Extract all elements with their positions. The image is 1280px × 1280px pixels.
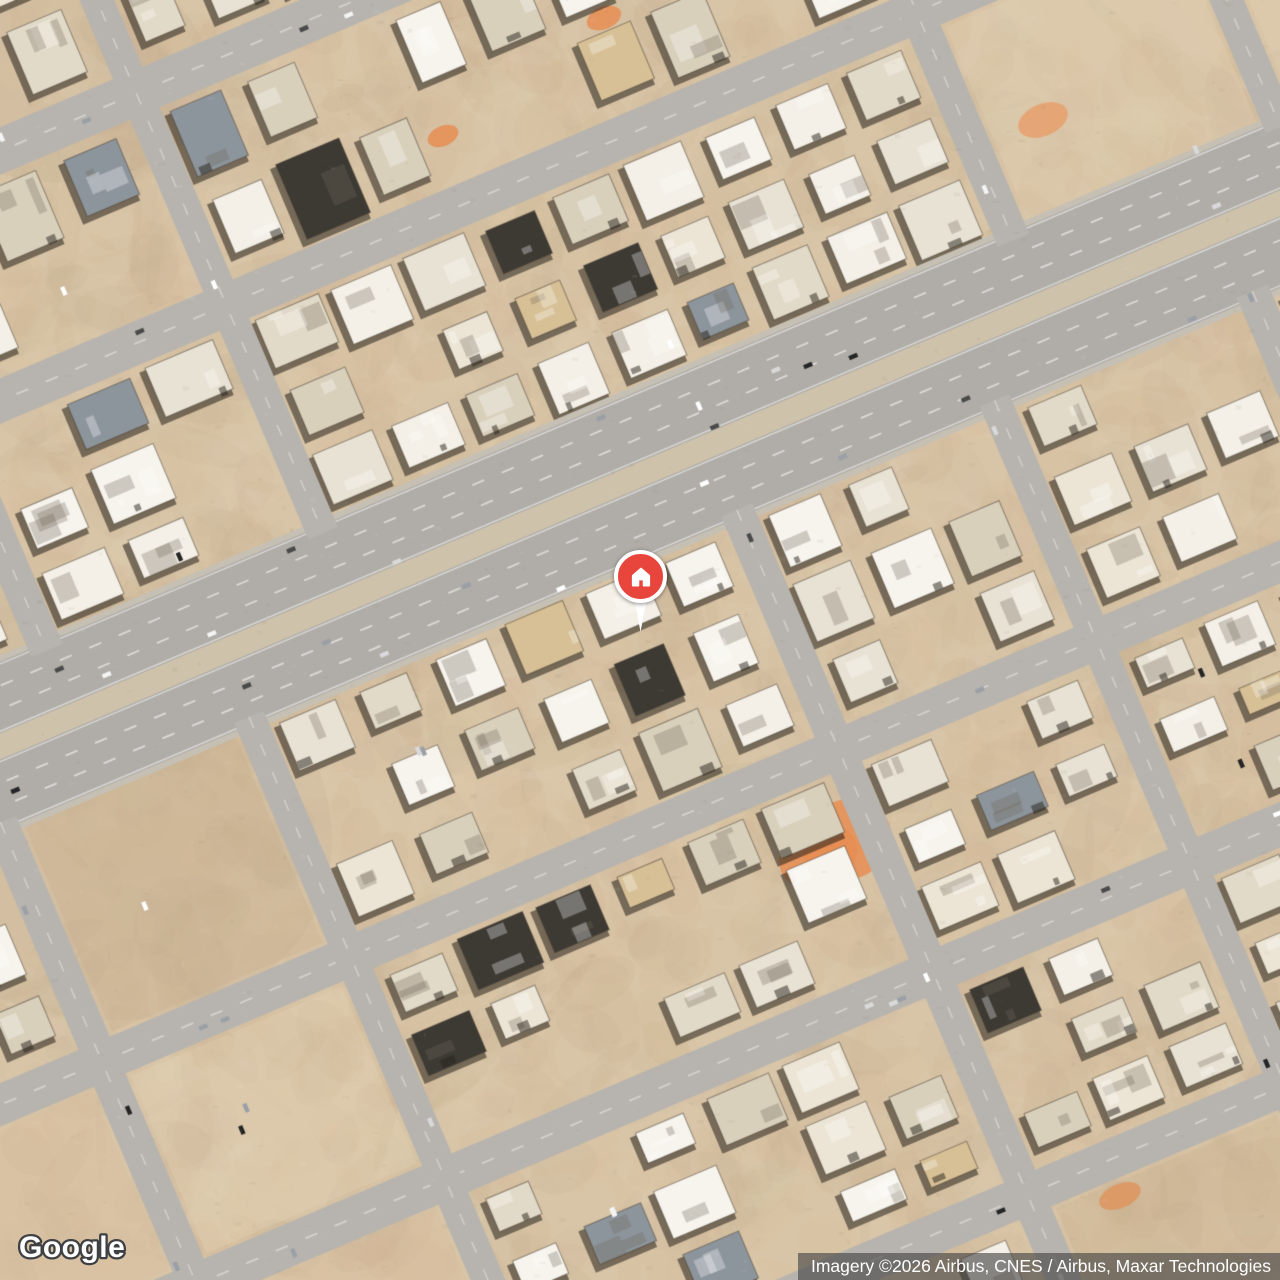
satellite-imagery[interactable] xyxy=(0,0,1280,1280)
attribution-bar: Imagery ©2026 Airbus, CNES / Airbus, Max… xyxy=(798,1253,1280,1280)
home-icon xyxy=(628,564,654,590)
map-viewport[interactable]: Google Imagery ©2026 Airbus, CNES / Airb… xyxy=(0,0,1280,1280)
location-pin[interactable] xyxy=(614,550,667,632)
google-logo-text: Google xyxy=(19,1231,125,1264)
google-logo[interactable]: Google xyxy=(16,1226,146,1268)
attribution-text: Imagery ©2026 Airbus, CNES / Airbus, Max… xyxy=(811,1256,1271,1276)
pin-head xyxy=(614,550,667,603)
